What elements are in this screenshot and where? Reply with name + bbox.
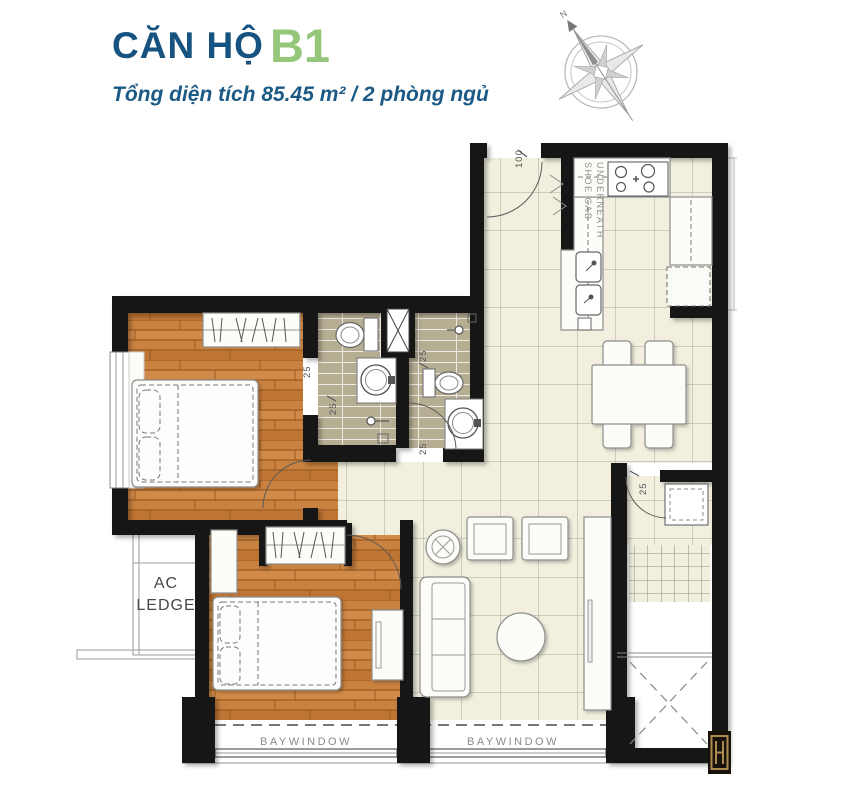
dim-100: 100 <box>514 149 525 168</box>
dim-25-d: 25 <box>418 442 429 455</box>
shoe-cab-label-line1: SHOE CAB <box>583 162 593 221</box>
dim-25-c: 25 <box>418 349 429 362</box>
page-subtitle: Tổng diện tích 85.45 m² / 2 phòng ngủ <box>112 83 489 107</box>
dining-chair <box>603 341 631 368</box>
armchair-1 <box>467 517 513 560</box>
armchair-2 <box>522 517 568 560</box>
dim-25-a: 25 <box>302 365 313 378</box>
basin1-tap <box>388 376 395 384</box>
shower1-head <box>367 417 375 425</box>
dining-chair <box>645 341 673 368</box>
coffee-table <box>497 613 545 661</box>
toilet1-bowl <box>336 323 364 348</box>
title-prefix: CĂN HỘ <box>112 25 264 66</box>
floorplan-drawing: AC LEDGE BAYWINDOW BAYWINDOW <box>0 0 850 787</box>
toilet1-cistern <box>364 318 378 351</box>
shoe-cab-label-line2: UNDERNEATH <box>595 162 605 239</box>
dining-chair <box>645 421 673 448</box>
right-dimension-lines <box>728 158 737 310</box>
baywindow-1: BAYWINDOW <box>215 725 397 757</box>
toilet2-bowl <box>435 372 463 394</box>
north-arrow-icon <box>563 17 577 32</box>
bedroom1-bed <box>132 380 258 487</box>
tv-console <box>584 517 611 710</box>
plan-header: CĂN HỘB1 Tổng diện tích 85.45 m² / 2 phò… <box>112 22 489 107</box>
ac-ledge-label-line2: LEDGE <box>136 597 195 614</box>
ac-ledge: AC LEDGE <box>77 533 198 659</box>
shower2-head <box>455 326 463 334</box>
fridge <box>667 267 710 306</box>
void-cross <box>630 662 707 744</box>
bedroom1-wardrobe <box>203 313 300 347</box>
page-title: CĂN HỘB1 <box>112 22 489 69</box>
service-ledge-tiles <box>629 545 710 602</box>
dim-25-b: 25 <box>328 402 339 415</box>
title-unit-code: B1 <box>270 19 330 72</box>
ac-ledge-label-line1: AC <box>154 575 178 592</box>
basin2-tap <box>474 419 481 427</box>
washer <box>665 484 708 525</box>
developer-logo-icon <box>708 731 731 774</box>
bedroom2-desk <box>372 610 403 680</box>
baywindow1-label: BAYWINDOW <box>260 736 352 748</box>
baywindow2-label: BAYWINDOW <box>467 736 559 748</box>
compass-rose: N <box>519 0 675 148</box>
toilet2-cistern <box>423 369 435 397</box>
dim-25-e: 25 <box>638 482 649 495</box>
shaft-vent <box>387 309 409 352</box>
baywindow-2: BAYWINDOW <box>420 725 606 757</box>
kitchen-counter-right <box>670 197 712 265</box>
side-plant-table <box>426 530 460 564</box>
dining-table <box>592 365 686 424</box>
cooktop <box>608 162 668 196</box>
dining-chair <box>603 421 631 448</box>
compass-north-label: N <box>558 8 569 20</box>
bedroom2-wardrobe <box>266 527 345 564</box>
floorplan-page: CĂN HỘB1 Tổng diện tích 85.45 m² / 2 phò… <box>0 0 850 787</box>
bedroom2-bed <box>213 597 341 690</box>
tv-screen <box>588 600 592 662</box>
sofa <box>420 577 470 697</box>
bedroom2-side-table <box>211 530 237 593</box>
